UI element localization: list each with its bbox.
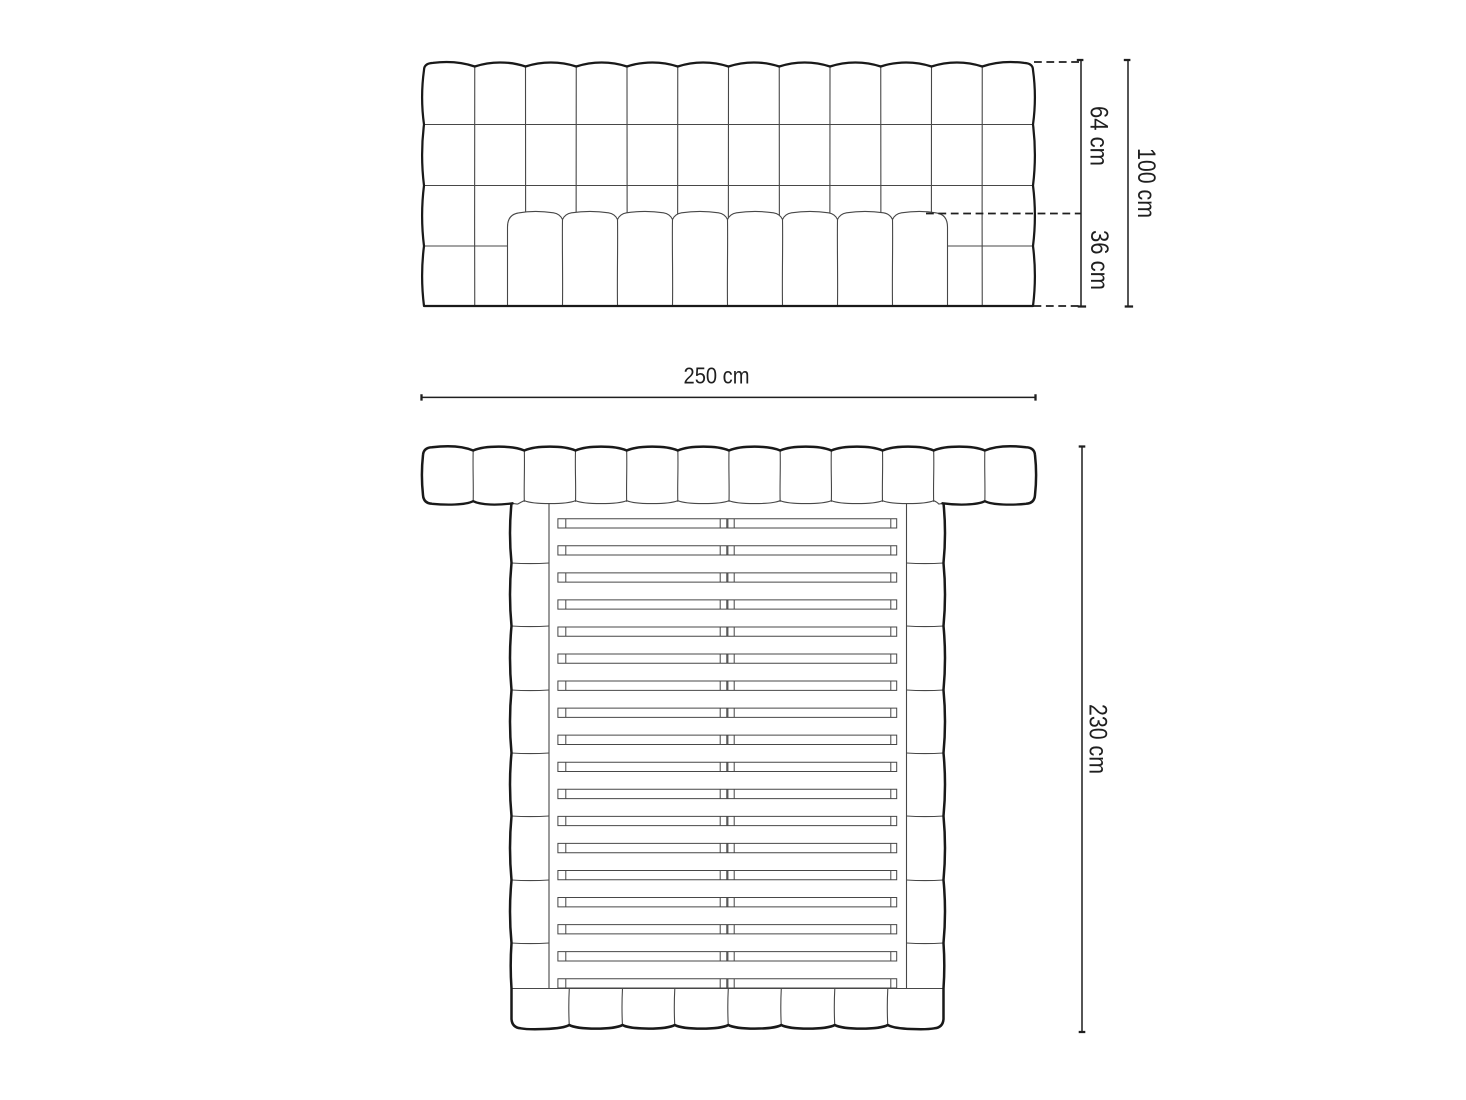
svg-text:36 cm: 36 cm [1085, 230, 1113, 290]
svg-text:64 cm: 64 cm [1085, 106, 1113, 166]
svg-text:100 cm: 100 cm [1132, 148, 1160, 218]
svg-text:230 cm: 230 cm [1084, 704, 1112, 774]
svg-text:250 cm: 250 cm [684, 363, 750, 389]
